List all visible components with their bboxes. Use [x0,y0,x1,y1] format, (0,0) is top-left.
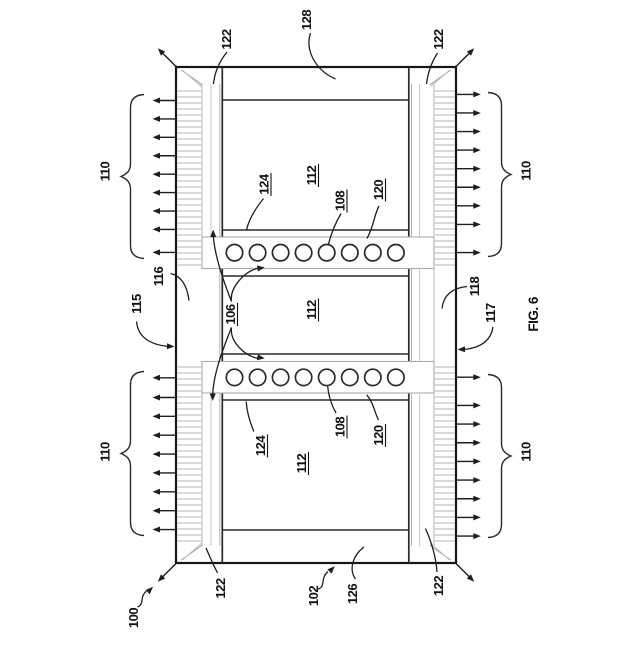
svg-text:116: 116 [151,266,166,286]
svg-text:112: 112 [304,300,319,320]
svg-text:117: 117 [483,303,498,323]
svg-text:122: 122 [431,29,446,49]
svg-text:118: 118 [467,276,482,296]
svg-text:110: 110 [519,161,534,181]
svg-text:108: 108 [333,417,348,437]
svg-text:124: 124 [253,435,268,456]
svg-text:120: 120 [371,425,386,445]
svg-text:120: 120 [371,180,386,200]
svg-text:122: 122 [431,576,446,596]
svg-text:112: 112 [304,165,319,185]
svg-text:124: 124 [257,173,272,194]
svg-text:102: 102 [306,586,321,606]
svg-text:110: 110 [519,442,534,462]
svg-text:126: 126 [345,584,360,604]
svg-text:112: 112 [294,453,309,473]
svg-text:100: 100 [126,608,141,628]
svg-text:110: 110 [98,442,113,462]
svg-text:108: 108 [333,191,348,211]
svg-text:122: 122 [219,29,234,49]
svg-text:110: 110 [98,161,113,181]
svg-text:122: 122 [213,578,228,598]
svg-text:106: 106 [223,304,238,324]
svg-text:FIG. 6: FIG. 6 [526,296,541,331]
svg-text:128: 128 [299,10,314,30]
svg-text:115: 115 [129,294,144,314]
